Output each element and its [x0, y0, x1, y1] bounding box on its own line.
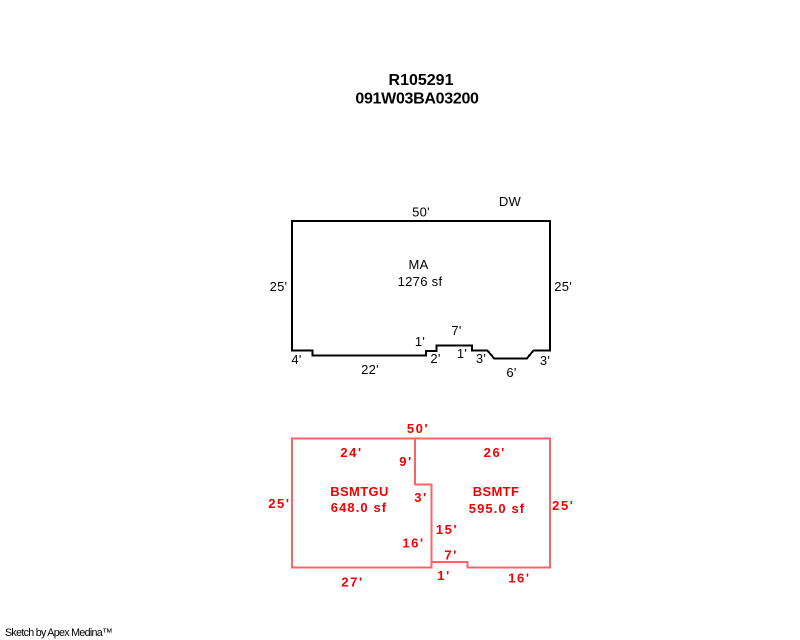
svg-text:1': 1'	[415, 334, 425, 349]
svg-text:7': 7'	[451, 323, 461, 338]
svg-text:22': 22'	[361, 362, 379, 377]
svg-text:4': 4'	[291, 352, 301, 367]
svg-text:3': 3'	[414, 490, 428, 505]
svg-text:25': 25'	[268, 496, 290, 511]
svg-text:595.0 sf: 595.0 sf	[469, 501, 526, 516]
svg-text:16': 16'	[402, 536, 424, 551]
svg-text:BSMTF: BSMTF	[473, 484, 520, 499]
svg-text:24': 24'	[340, 445, 362, 460]
svg-text:27': 27'	[341, 575, 363, 590]
svg-text:1': 1'	[437, 568, 451, 583]
svg-text:15': 15'	[436, 522, 458, 537]
svg-text:648.0 sf: 648.0 sf	[331, 500, 388, 515]
svg-text:DW: DW	[499, 194, 522, 209]
svg-text:MA: MA	[408, 257, 428, 272]
svg-text:R105291: R105291	[389, 72, 454, 89]
svg-text:25': 25'	[270, 279, 288, 294]
svg-text:3': 3'	[540, 353, 550, 368]
svg-text:6': 6'	[506, 365, 516, 380]
svg-text:25': 25'	[554, 279, 572, 294]
svg-text:BSMTGU: BSMTGU	[330, 484, 388, 499]
svg-text:2': 2'	[430, 351, 440, 366]
svg-text:3': 3'	[476, 351, 486, 366]
svg-text:50': 50'	[412, 205, 430, 220]
svg-text:26': 26'	[484, 445, 506, 460]
svg-text:091W03BA03200: 091W03BA03200	[355, 91, 479, 108]
svg-text:7': 7'	[444, 548, 458, 563]
svg-text:25': 25'	[552, 498, 574, 513]
svg-text:9': 9'	[399, 454, 413, 469]
svg-text:1': 1'	[457, 346, 467, 361]
svg-text:16': 16'	[508, 571, 530, 586]
svg-text:Sketch by Apex Medina™: Sketch by Apex Medina™	[5, 627, 112, 639]
svg-text:1276 sf: 1276 sf	[398, 274, 443, 289]
svg-text:50': 50'	[407, 421, 429, 436]
